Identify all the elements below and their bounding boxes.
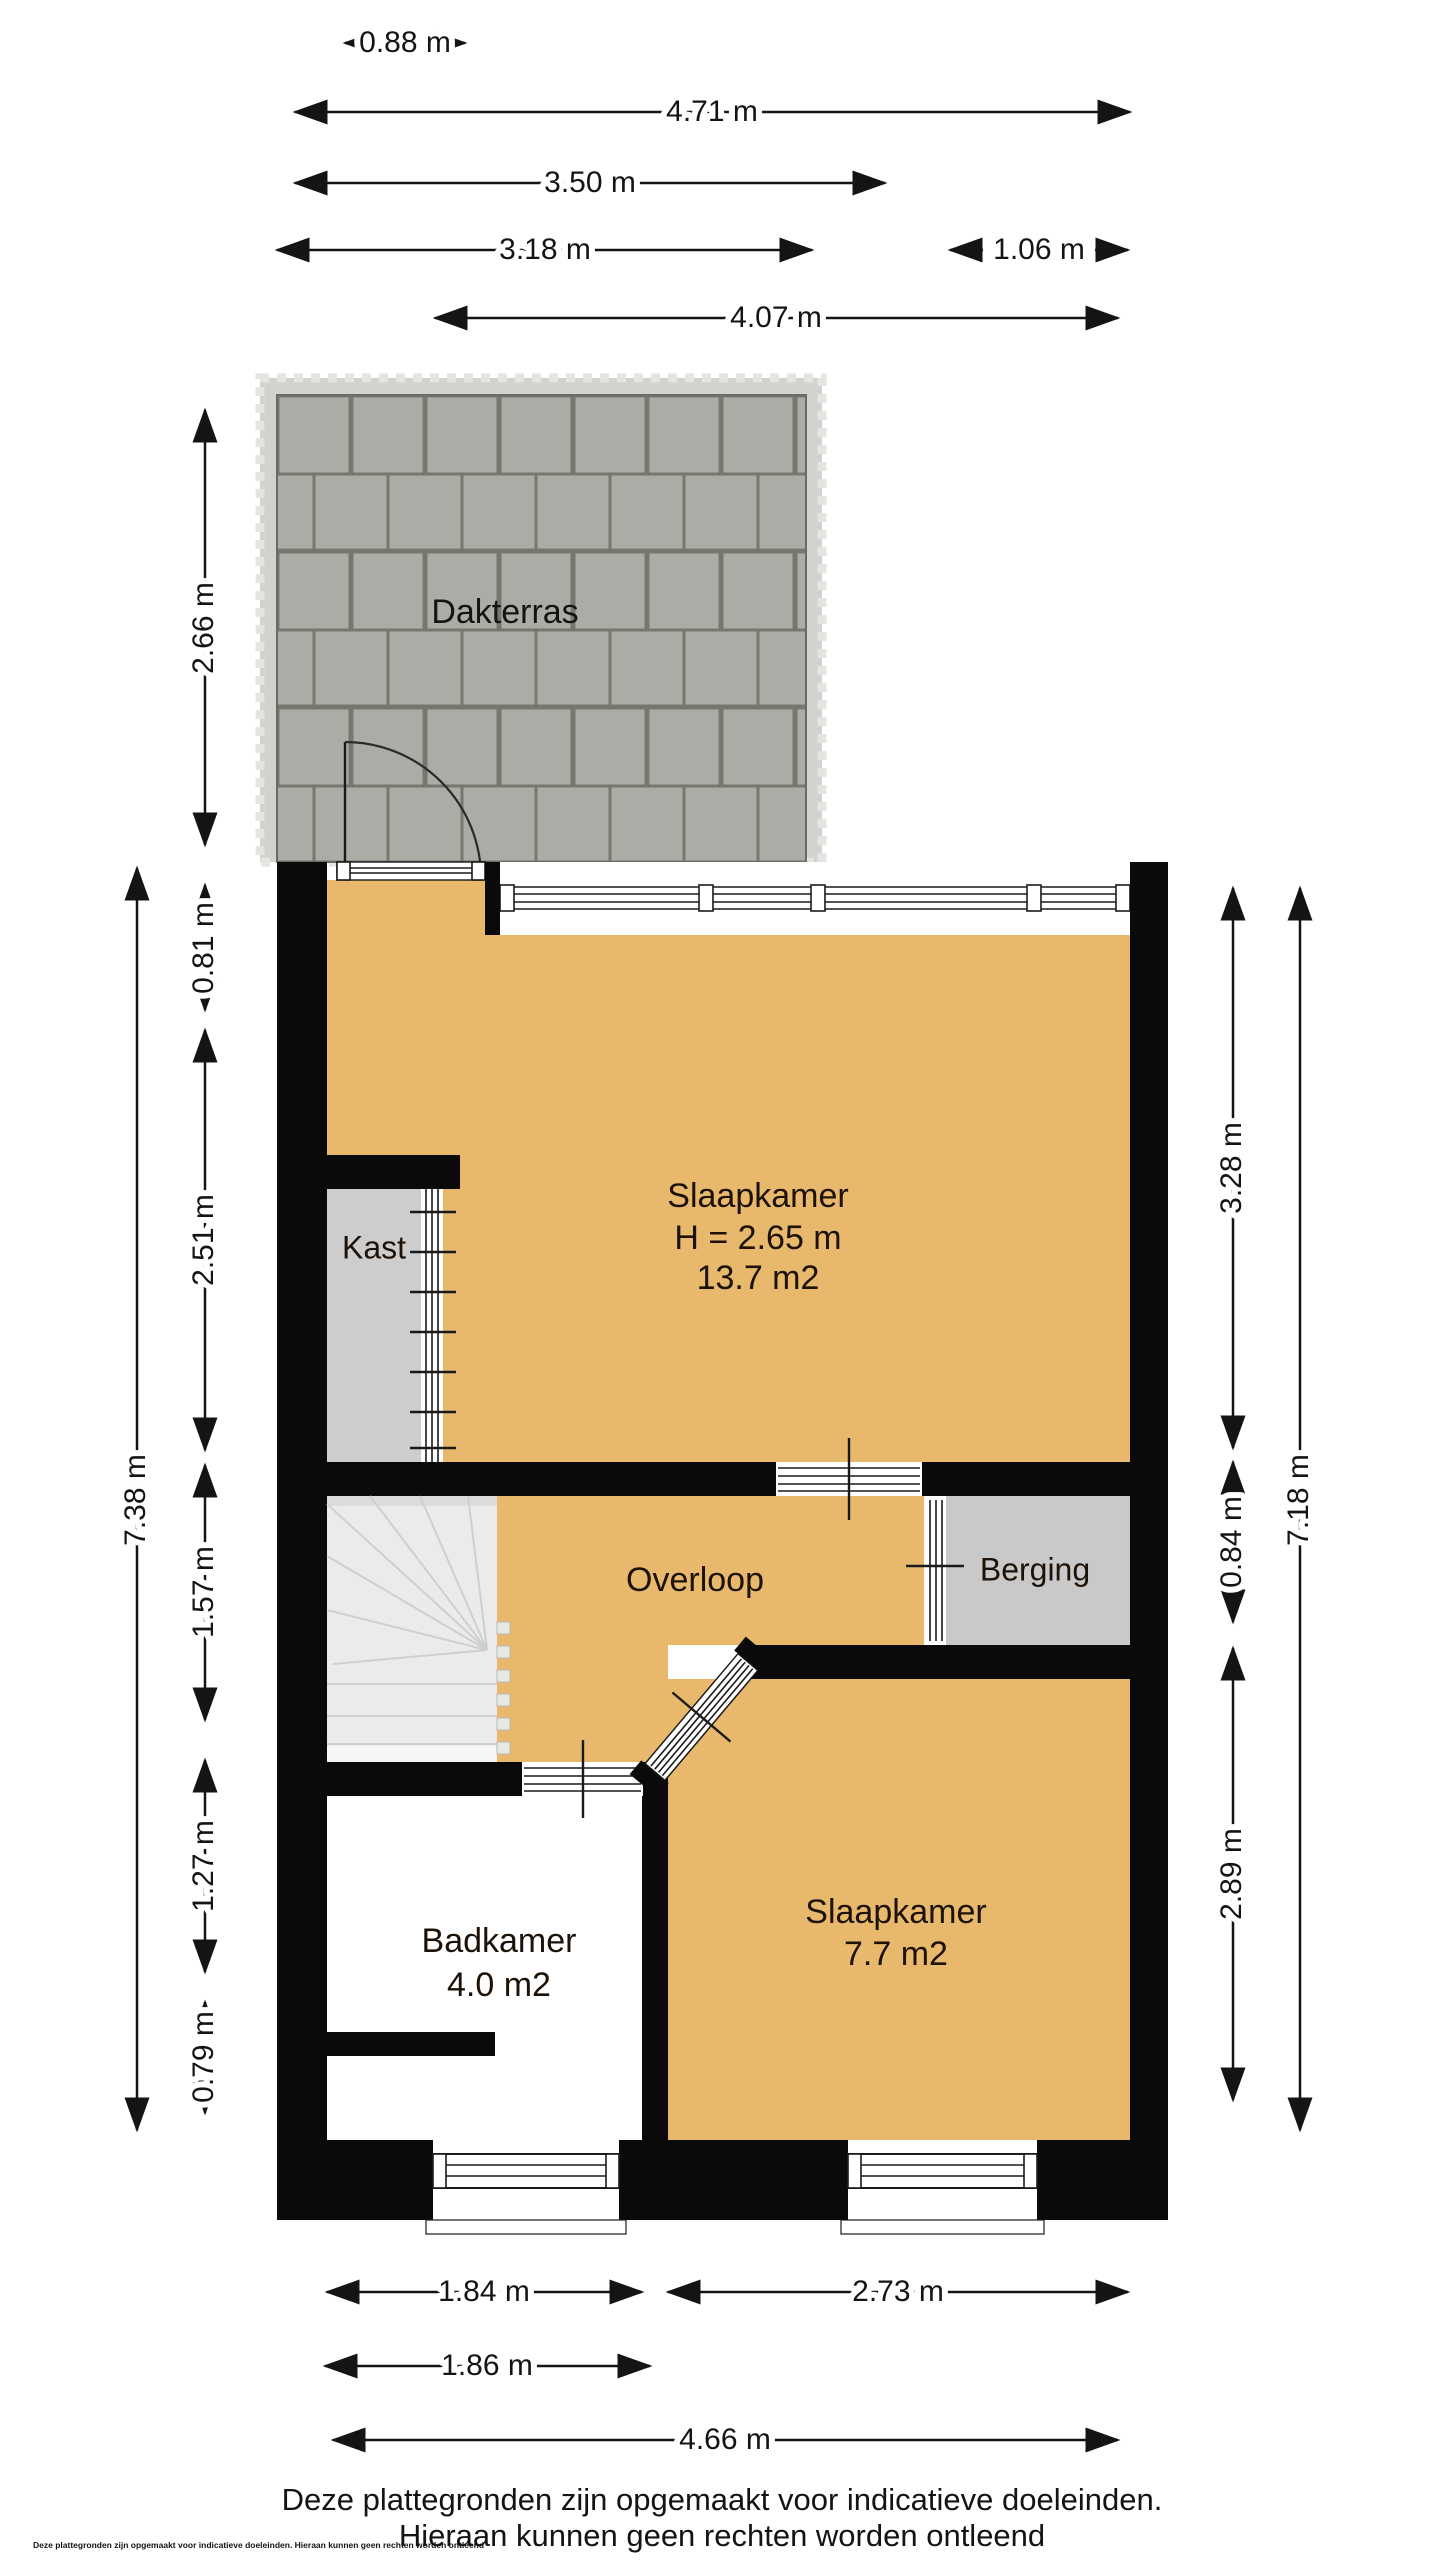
wall-pier-top <box>485 862 500 935</box>
room-area-slaapkamer2: 7.7 m2 <box>844 1935 948 1973</box>
dimensions-top: 0.88 m 4.71 m 3.50 m 3.18 m 1.06 m 4.07 … <box>277 26 1130 334</box>
window-mullion <box>433 2154 446 2188</box>
footer-fine-print: Deze plattegronden zijn opgemaakt voor i… <box>33 2540 484 2550</box>
room-label-slaapkamer1: Slaapkamer <box>667 1177 848 1215</box>
room-label-slaapkamer2: Slaapkamer <box>805 1893 986 1931</box>
footer: Deze plattegronden zijn opgemaakt voor i… <box>33 2482 1162 2553</box>
wall-left <box>277 862 327 2220</box>
dimension-label: 2.89 m <box>1215 1828 1248 1920</box>
dimension-label: 0.81 m <box>187 902 220 994</box>
window-badkamer <box>426 2140 626 2234</box>
dakterras-terrace: Dakterras <box>260 378 822 878</box>
dimension-label: 1.86 m <box>441 2349 533 2382</box>
dimension-label: 3.28 m <box>1215 1122 1248 1214</box>
room-label-badkamer: Badkamer <box>422 1922 577 1960</box>
dimension-label: 0.88 m <box>359 26 451 59</box>
wall-mid-right <box>922 1462 1168 1496</box>
dimension-label: 2.73 m <box>852 2275 944 2308</box>
window-outer-sill <box>426 2220 626 2234</box>
room-label-kast: Kast <box>342 1229 406 1265</box>
dimension-label: 4.71 m <box>666 95 758 128</box>
room-label-overloop: Overloop <box>626 1561 764 1599</box>
dimensions-bottom: 1.84 m 2.73 m 1.86 m 4.66 m <box>325 2275 1128 2456</box>
window-mullion <box>500 885 514 911</box>
room-area-badkamer: 4.0 m2 <box>447 1966 551 2004</box>
window-mullion <box>811 885 825 911</box>
wall-badkamer-right <box>642 1796 668 2140</box>
window-mullion <box>606 2154 619 2188</box>
wall-mid-left <box>327 1462 776 1496</box>
footer-disclaimer-line1: Deze plattegronden zijn opgemaakt voor i… <box>282 2482 1163 2517</box>
room-height-slaapkamer1: H = 2.65 m <box>674 1219 841 1257</box>
wall-bottom-c <box>1037 2140 1168 2220</box>
wall-kast-top <box>327 1155 460 1189</box>
door-jamb <box>337 862 350 880</box>
dimension-label: 1.06 m <box>993 233 1085 266</box>
window-mullion <box>1116 885 1130 911</box>
dimension-label: 3.18 m <box>499 233 591 266</box>
wall-right <box>1130 862 1168 2220</box>
window-slaapkamer2 <box>841 2140 1044 2234</box>
window-mullion <box>1024 2154 1037 2188</box>
floorplan-drawing: Dakterras <box>0 0 1440 2560</box>
window-outer-sill <box>841 2220 1044 2234</box>
dimension-label: 2.51 m <box>187 1194 220 1286</box>
dimension-label: 7.18 m <box>1282 1454 1315 1546</box>
dimensions-left: 2.66 m 0.81 m 2.51 m 1.57 m 1.27 m 0.79 … <box>119 410 220 2130</box>
wall-bottom-b <box>619 2140 848 2220</box>
window-mullion <box>1027 885 1041 911</box>
room-label-dakterras: Dakterras <box>431 593 578 631</box>
footer-disclaimer-line2: Hieraan kunnen geen rechten worden ontle… <box>399 2518 1045 2553</box>
dimension-label: 1.27 m <box>187 1820 220 1912</box>
window-mullion <box>699 885 713 911</box>
terrace-door-sill <box>337 862 485 880</box>
dimension-label: 1.57 m <box>187 1546 220 1638</box>
door-jamb <box>472 862 485 880</box>
dimension-label: 4.66 m <box>679 2423 771 2456</box>
window-frame <box>848 2154 1037 2188</box>
wall-badkamer-stub <box>277 2032 495 2056</box>
wall-berging-bottom <box>746 1645 1168 1679</box>
wall-bottom-a <box>277 2140 433 2220</box>
dimensions-right: 3.28 m 0.84 m 2.89 m 7.18 m <box>1215 888 1315 2130</box>
window-frame <box>433 2154 619 2188</box>
floorplan-page: Dakterras <box>0 0 1440 2560</box>
stairs-top-shadow <box>327 1496 497 1506</box>
dimension-label: 7.38 m <box>119 1454 152 1546</box>
dimension-label: 0.79 m <box>187 2011 220 2103</box>
dimension-label: 2.66 m <box>187 582 220 674</box>
dimension-label: 0.84 m <box>1215 1496 1248 1588</box>
dimension-label: 3.50 m <box>544 166 636 199</box>
room-area-slaapkamer1: 13.7 m2 <box>697 1259 820 1297</box>
window-mullion <box>848 2154 861 2188</box>
dimension-label: 1.84 m <box>438 2275 530 2308</box>
dimension-label: 4.07 m <box>730 301 822 334</box>
wall-stairs-bottom <box>277 1762 522 1796</box>
staircase <box>327 1496 510 1762</box>
stairs-bottom-step <box>327 1746 497 1762</box>
room-label-berging: Berging <box>980 1551 1090 1587</box>
